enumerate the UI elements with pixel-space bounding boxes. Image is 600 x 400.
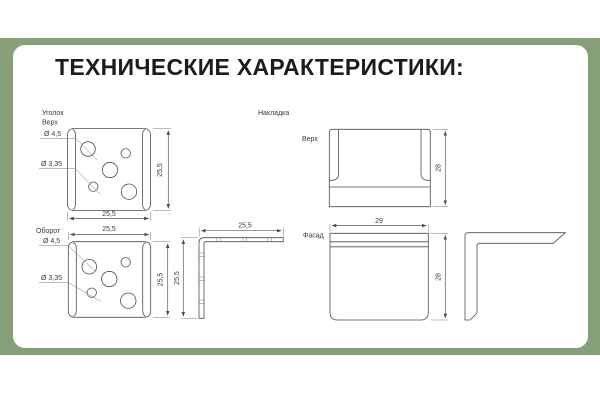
dim-height-value: 25,5 <box>157 163 164 177</box>
overlay-top-right-fold-line <box>421 130 430 181</box>
dim-height-value: 25,5 <box>158 273 165 287</box>
dia-large-label: Ø 4,5 <box>44 131 61 138</box>
bracket-back-plate-outline <box>68 242 150 318</box>
bracket-top-left-fold-line <box>73 130 76 210</box>
hole-large-3 <box>121 184 136 199</box>
dia-large-label: Ø 4,5 <box>43 238 60 245</box>
overlay-front-view-label: Фасад <box>303 233 324 240</box>
dim-width-value: 25,5 <box>102 226 116 233</box>
dim-height-value: 28 <box>436 164 443 172</box>
bracket-back-left-fold-line <box>73 243 76 317</box>
bracket-top-view-label: Верх <box>42 120 58 127</box>
bracket-back-view-label: Оборот <box>36 227 61 235</box>
hole-large-1 <box>82 259 97 274</box>
bracket-back-view: Оборот 25,5 Ø 4,5 Ø 3,35 25,5 <box>36 226 170 317</box>
dim-width-value: 29 <box>375 218 383 225</box>
bracket-top-right-fold-line <box>143 130 146 210</box>
overlay-front-outline <box>330 233 428 320</box>
overlay-front-view: Фасад 29 28 <box>303 218 448 320</box>
dia-large-leader-line <box>39 246 95 272</box>
dim-height-value: 28 <box>436 273 443 281</box>
bracket-profile-outline <box>199 238 283 319</box>
hole-large-2 <box>102 162 117 177</box>
hole-large-3 <box>121 293 136 308</box>
dim-extension-lines <box>330 224 428 232</box>
dim-width-value: 25,5 <box>102 211 116 218</box>
overlay-top-view: Накладка Верх 28 <box>258 110 448 207</box>
technical-drawing: Уголок Верх Ø 4,5 Ø 3,35 25,5 25,5 Оборо… <box>0 0 600 400</box>
hole-large-2 <box>102 271 117 286</box>
bracket-top-view: Уголок Верх Ø 4,5 Ø 3,35 25,5 25,5 <box>39 110 171 221</box>
hole-small-2 <box>89 182 98 191</box>
overlay-side-view <box>465 233 565 320</box>
profile-hole-ticks-horizontal <box>217 238 272 241</box>
overlay-top-left-fold-line <box>330 130 339 181</box>
overlay-profile-outline <box>465 233 565 320</box>
bracket-back-right-fold-line <box>143 243 146 317</box>
bracket-name-label: Уголок <box>42 110 64 117</box>
overlay-top-outline <box>329 129 430 206</box>
hole-small-1 <box>121 258 130 267</box>
bracket-top-plate-outline <box>68 129 151 211</box>
profile-hole-ticks-vertical <box>199 253 203 304</box>
dia-small-leader-line <box>39 283 101 302</box>
dia-small-label: Ø 3,35 <box>41 275 62 282</box>
hole-large-1 <box>81 142 96 157</box>
dim-width-value: 25,5 <box>238 223 252 230</box>
dia-small-label: Ø 3,35 <box>41 161 62 168</box>
dim-height-value: 25,5 <box>174 271 181 285</box>
bracket-side-view: 25,5 25,5 <box>174 223 283 319</box>
overlay-name-label: Накладка <box>258 110 289 117</box>
hole-small-1 <box>121 149 130 158</box>
overlay-top-view-label: Верх <box>302 136 318 143</box>
